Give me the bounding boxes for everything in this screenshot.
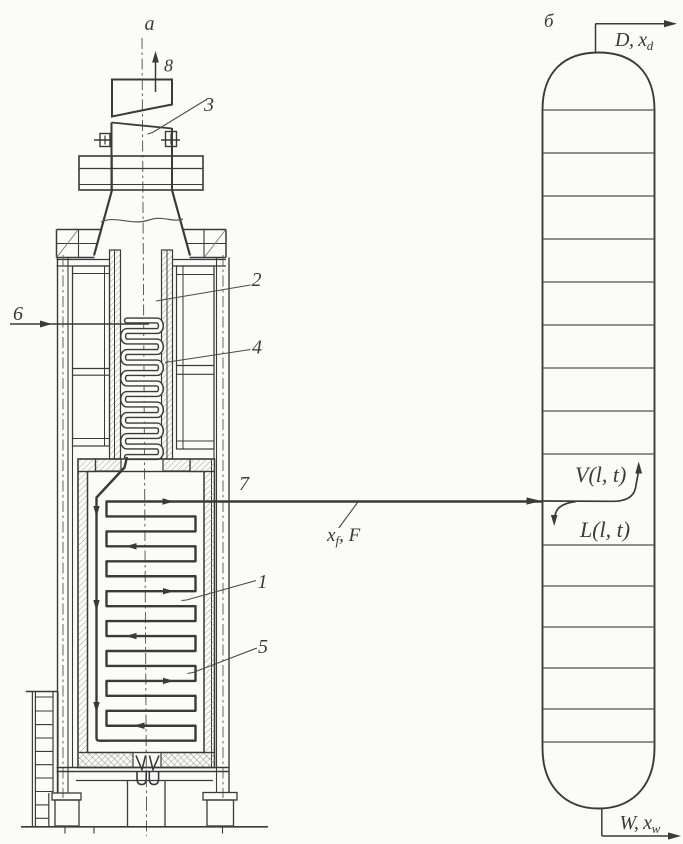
svg-text:1: 1 bbox=[258, 571, 268, 593]
svg-text:б: б bbox=[544, 11, 555, 32]
svg-text:8: 8 bbox=[164, 56, 173, 76]
svg-text:L(l, t): L(l, t) bbox=[579, 517, 630, 542]
svg-text:6: 6 bbox=[13, 303, 23, 325]
svg-text:2: 2 bbox=[252, 269, 262, 291]
svg-text:3: 3 bbox=[203, 94, 214, 116]
svg-text:5: 5 bbox=[258, 636, 268, 658]
svg-text:4: 4 bbox=[252, 337, 262, 359]
svg-text:V(l, t): V(l, t) bbox=[575, 462, 626, 487]
svg-text:7: 7 bbox=[239, 473, 250, 495]
svg-text:xf, F: xf, F bbox=[326, 525, 361, 548]
svg-text:а: а bbox=[145, 13, 155, 35]
